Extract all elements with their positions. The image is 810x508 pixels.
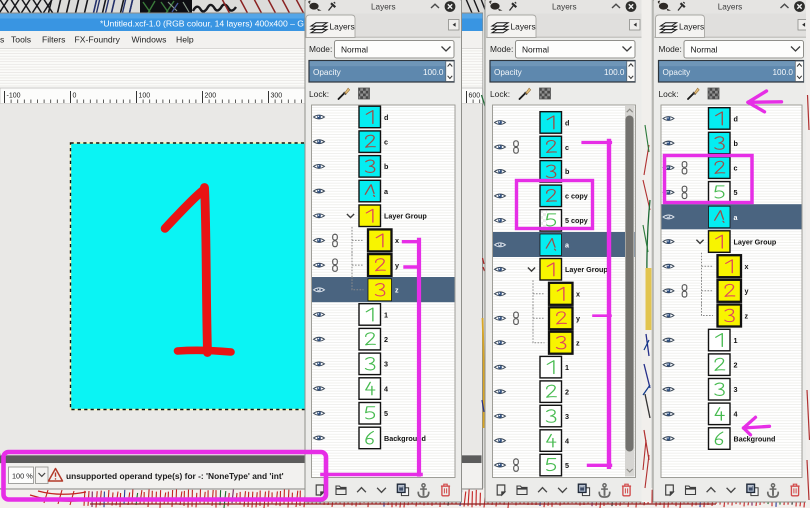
- svg-text:c: c: [565, 143, 569, 152]
- svg-text:Normal: Normal: [691, 44, 718, 54]
- svg-text:Mode:: Mode:: [659, 44, 682, 54]
- svg-text:100: 100: [139, 93, 151, 100]
- svg-text:4: 4: [734, 410, 738, 419]
- svg-text:Layers: Layers: [552, 3, 577, 12]
- svg-text:-100: -100: [7, 93, 21, 100]
- svg-text:z: z: [395, 286, 399, 295]
- svg-text:300: 300: [271, 93, 283, 100]
- svg-text:3: 3: [565, 412, 569, 421]
- svg-text:100.0: 100.0: [423, 68, 444, 77]
- svg-text:x: x: [395, 236, 399, 245]
- svg-text:Layer Group: Layer Group: [384, 212, 427, 221]
- svg-text:FX-Foundry: FX-Foundry: [75, 35, 121, 45]
- svg-text:1: 1: [734, 336, 738, 345]
- svg-text:c: c: [734, 164, 738, 173]
- svg-text:c copy: c copy: [565, 192, 588, 201]
- svg-text:d: d: [734, 114, 738, 123]
- svg-text:Layers: Layers: [511, 22, 536, 32]
- svg-text:3: 3: [384, 360, 388, 369]
- svg-text:2: 2: [565, 388, 569, 397]
- svg-text:Lock:: Lock:: [659, 89, 679, 99]
- svg-text:Layer Group: Layer Group: [734, 237, 777, 246]
- svg-text:y: y: [745, 287, 749, 296]
- svg-text:b: b: [565, 167, 570, 176]
- svg-text:3: 3: [734, 385, 738, 394]
- svg-text:b: b: [734, 139, 739, 148]
- svg-text:2: 2: [734, 361, 738, 370]
- svg-text:d: d: [384, 113, 388, 122]
- svg-text:Normal: Normal: [522, 44, 549, 54]
- svg-text:100.0: 100.0: [604, 68, 625, 77]
- svg-text:z: z: [576, 339, 580, 348]
- svg-text:Layer Group: Layer Group: [565, 265, 608, 274]
- svg-text:5 copy: 5 copy: [565, 216, 588, 225]
- svg-text:200: 200: [205, 93, 217, 100]
- svg-text:b: b: [384, 162, 389, 171]
- svg-text:Opacity: Opacity: [494, 68, 523, 77]
- svg-text:4: 4: [384, 384, 388, 393]
- svg-text:x: x: [576, 290, 580, 299]
- svg-text:c: c: [384, 138, 388, 147]
- svg-text:Lock:: Lock:: [309, 89, 329, 99]
- svg-text:Background: Background: [734, 434, 776, 443]
- svg-text:1: 1: [565, 363, 569, 372]
- svg-text:Opacity: Opacity: [663, 68, 692, 77]
- svg-text:Mode:: Mode:: [309, 44, 332, 54]
- svg-text:Normal: Normal: [341, 44, 368, 54]
- svg-text:5: 5: [734, 188, 738, 197]
- svg-text:y: y: [576, 314, 580, 323]
- svg-text:x: x: [745, 262, 749, 271]
- svg-text:2: 2: [384, 335, 388, 344]
- svg-text:z: z: [745, 311, 749, 320]
- svg-text:y: y: [395, 261, 399, 270]
- svg-text:Windows: Windows: [132, 35, 167, 45]
- svg-text:*Untitled.xcf-1.0 (RGB colour,: *Untitled.xcf-1.0 (RGB colour, 14 layers…: [100, 19, 304, 29]
- svg-text:0: 0: [73, 93, 77, 100]
- svg-text:100.0: 100.0: [773, 68, 794, 77]
- svg-text:Layers: Layers: [330, 22, 355, 32]
- svg-text:Layers: Layers: [718, 3, 743, 12]
- svg-text:Layers: Layers: [371, 3, 396, 12]
- svg-text:Filters: Filters: [42, 35, 65, 45]
- svg-text:Tools: Tools: [11, 35, 31, 45]
- svg-text:Mode:: Mode:: [490, 44, 513, 54]
- svg-text:100 %: 100 %: [12, 472, 33, 481]
- svg-text:Layers: Layers: [679, 22, 704, 32]
- svg-text:4: 4: [565, 436, 569, 445]
- svg-text:unsupported operand type(s) fo: unsupported operand type(s) for -: 'None…: [66, 471, 284, 481]
- svg-text:5: 5: [384, 409, 388, 418]
- svg-text:1: 1: [384, 310, 388, 319]
- svg-text:s: s: [0, 35, 4, 45]
- svg-text:5: 5: [565, 461, 569, 470]
- svg-text:Opacity: Opacity: [313, 68, 342, 77]
- svg-text:600: 600: [469, 93, 481, 100]
- svg-text:Help: Help: [176, 35, 194, 45]
- svg-text:d: d: [565, 118, 569, 127]
- svg-text:Lock:: Lock:: [490, 89, 510, 99]
